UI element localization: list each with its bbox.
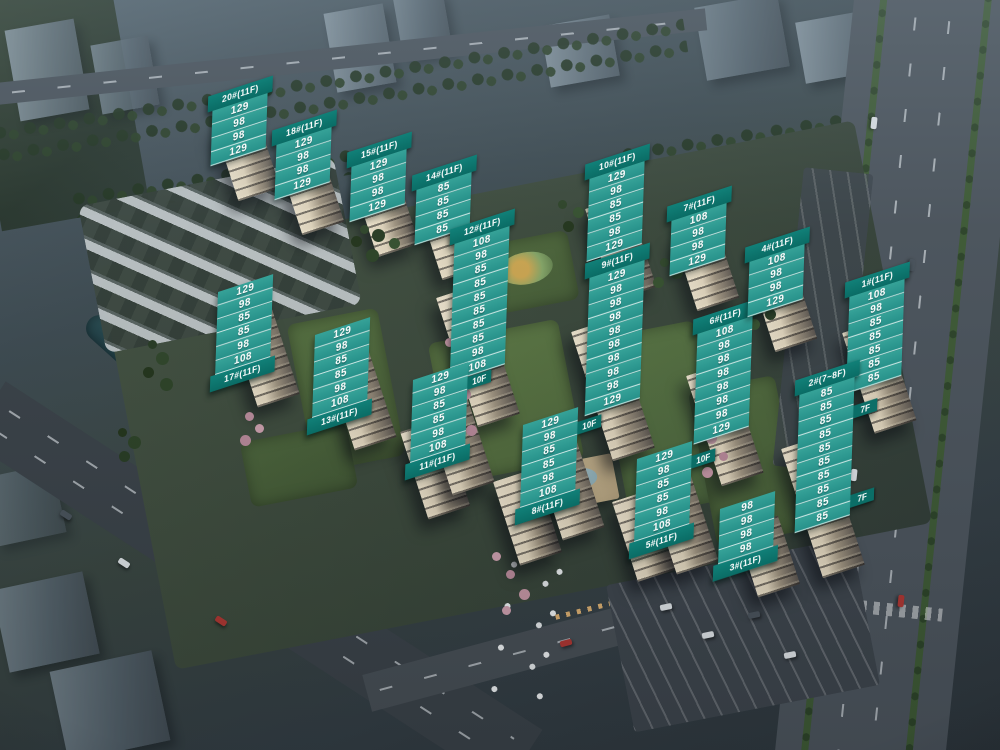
building-label-11[interactable]: 1299885859810811#(11F)10F	[410, 362, 469, 479]
tree-cluster-green	[118, 428, 127, 437]
floor-count-tag: 10F	[577, 414, 601, 434]
building-label-5[interactable]: 129988585981085#(11F)10F	[634, 441, 693, 558]
building-label-10[interactable]: 10#(11F)12998858598129	[587, 145, 646, 262]
building-label-17[interactable]: 1299885859810817#(11F)	[215, 274, 274, 391]
tree-cluster-green	[558, 200, 567, 209]
tree-cluster-green	[360, 225, 369, 234]
building-label-8[interactable]: 129988585981088#(11F)10F	[520, 407, 579, 524]
tree-cluster-pink	[492, 552, 501, 561]
car	[850, 469, 857, 482]
building-label-9[interactable]: 9#(11F)1299898989898989898129	[585, 244, 646, 416]
tree-cluster-green	[660, 258, 669, 267]
car	[870, 117, 877, 130]
building-label-13[interactable]: 1299885859810813#(11F)	[312, 317, 371, 434]
building-label-6[interactable]: 6#(11F)108989898989898129	[694, 300, 754, 444]
building-label-2[interactable]: 2#(7~8F)858585858585858585857F7F	[795, 361, 856, 533]
floor-count-tag: 10F	[691, 448, 715, 468]
car	[897, 595, 904, 608]
tree-cluster-green	[148, 340, 157, 349]
aerial-scene: 20#(11F)129989812918#(11F)129989812915#(…	[0, 0, 1000, 750]
building-label-12[interactable]: 12#(11F)1089885858585858598108	[450, 210, 511, 382]
tree-cluster-pink	[245, 412, 254, 421]
floor-count-tag: 7F	[850, 487, 874, 507]
